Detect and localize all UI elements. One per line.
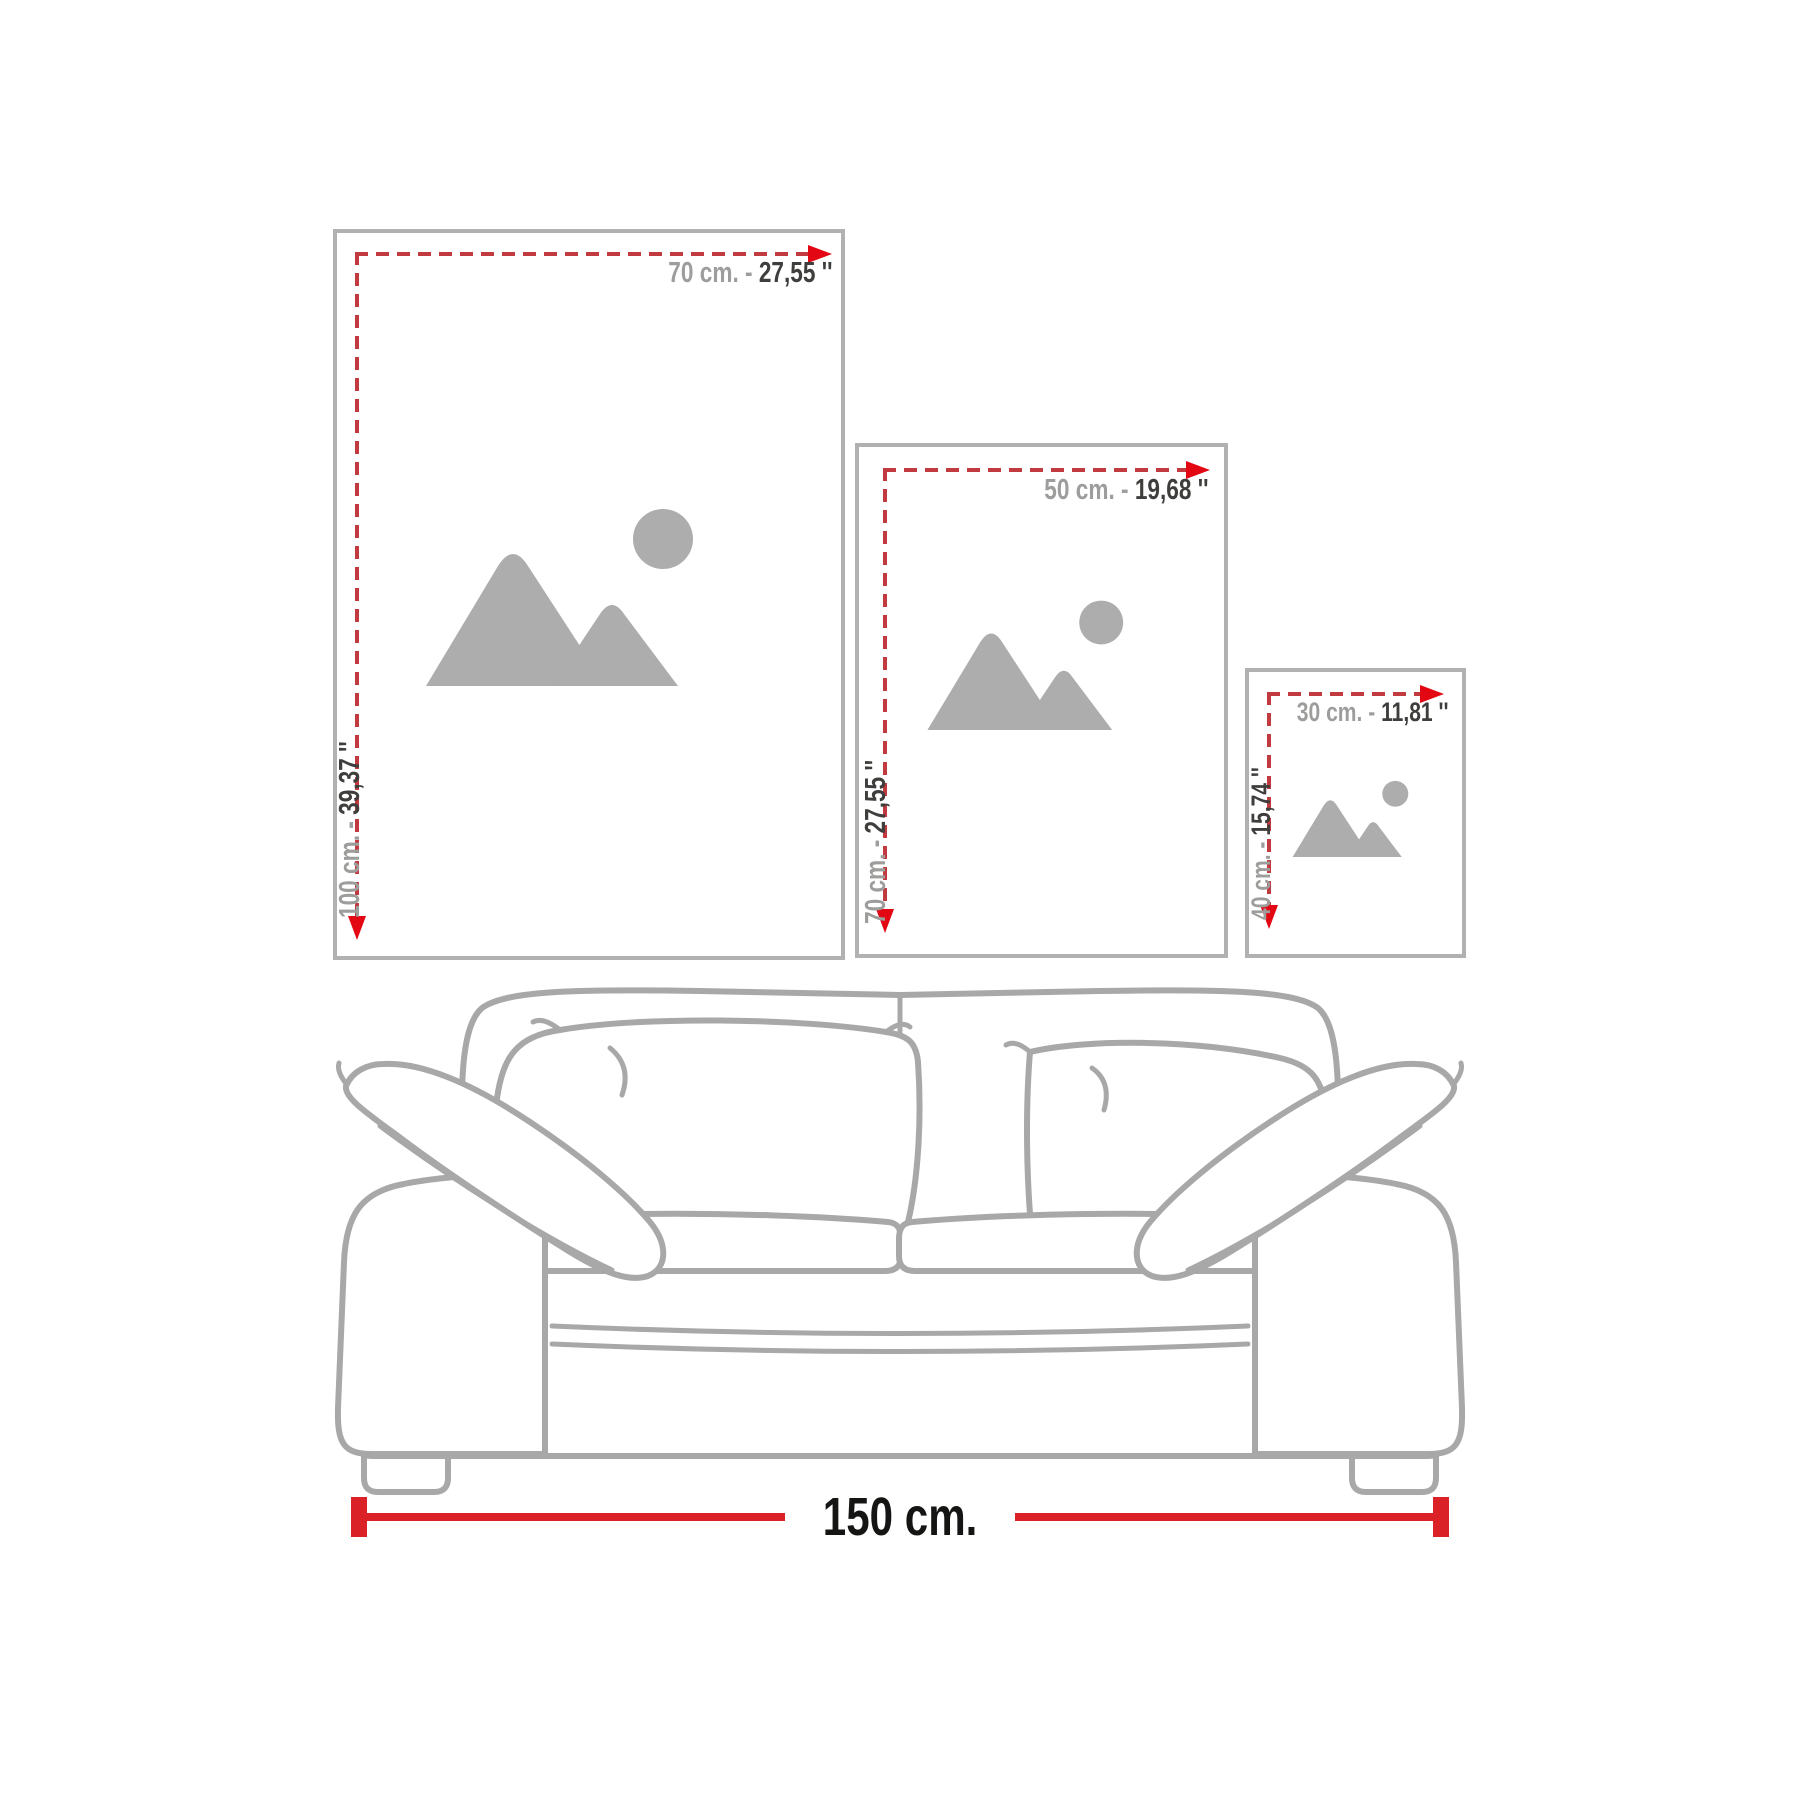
measure-end-cap-right (1433, 1497, 1449, 1537)
sofa-width-measure: 150 cm. (351, 1497, 1449, 1537)
measure-end-cap-left (351, 1497, 367, 1537)
measure-line-right (1015, 1513, 1433, 1521)
measure-line-left (367, 1513, 785, 1521)
sofa-width-value: 150 cm. (823, 1490, 978, 1544)
size-guide-diagram: 70 cm. - 27,55 '' 100 cm. - 39,37 '' 50 … (0, 0, 1800, 1800)
